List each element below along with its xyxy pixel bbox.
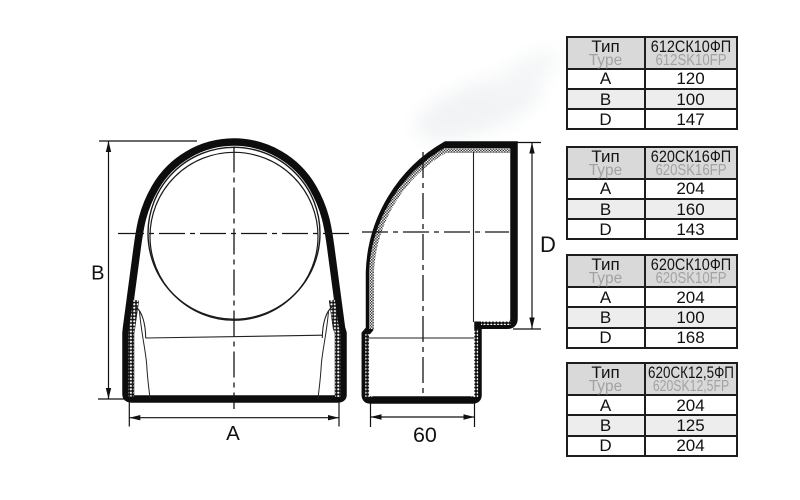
svg-text:A: A bbox=[226, 422, 240, 445]
svg-text:D: D bbox=[540, 232, 556, 257]
svg-text:B: B bbox=[91, 263, 104, 285]
svg-text:60: 60 bbox=[413, 423, 437, 447]
